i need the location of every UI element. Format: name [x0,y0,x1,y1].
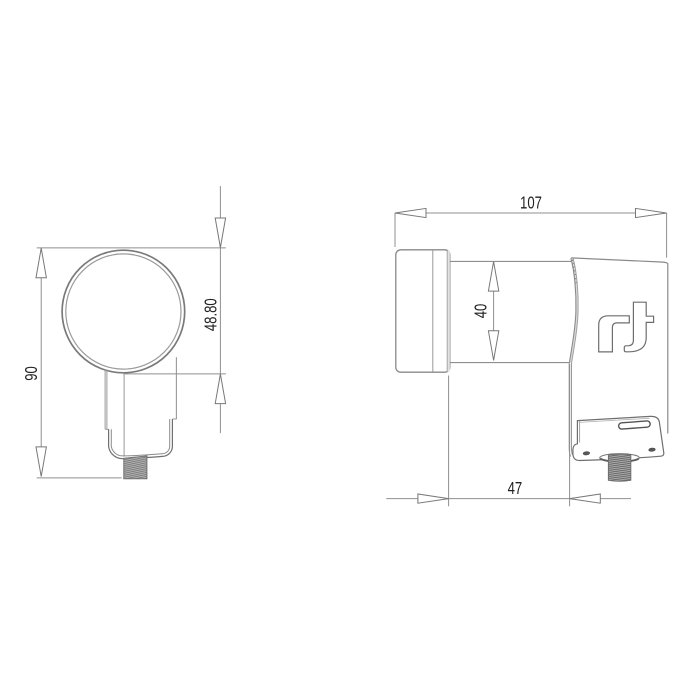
svg-text:107: 107 [520,194,542,213]
svg-text:48.80: 48.80 [202,298,221,331]
svg-text:90: 90 [22,366,41,381]
svg-text:47: 47 [508,479,523,498]
svg-text:40: 40 [472,304,491,319]
